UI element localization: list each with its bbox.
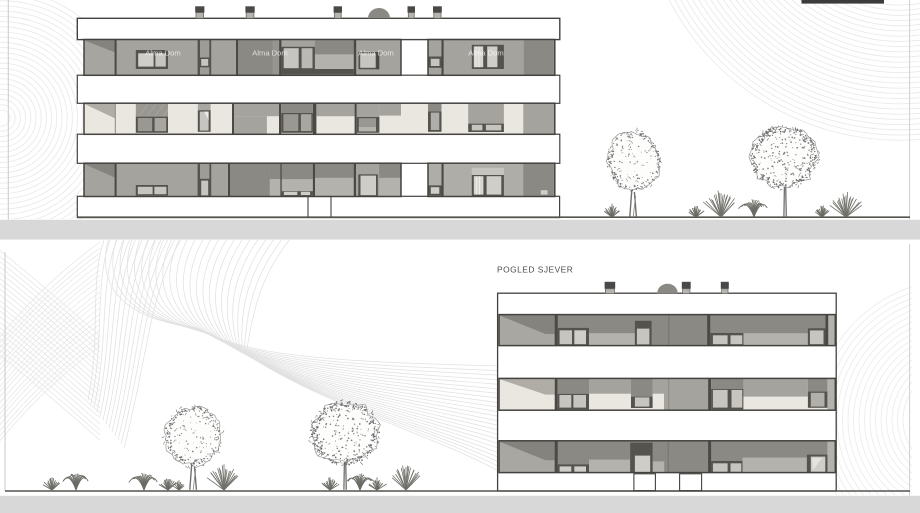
svg-text:POGLED SJEVER: POGLED SJEVER bbox=[497, 265, 573, 275]
svg-text:Alma Dom: Alma Dom bbox=[252, 49, 287, 58]
svg-text:Alma Dom: Alma Dom bbox=[358, 49, 393, 58]
svg-text:Alma Dom: Alma Dom bbox=[145, 49, 180, 58]
svg-text:Alma Dom: Alma Dom bbox=[468, 49, 503, 58]
